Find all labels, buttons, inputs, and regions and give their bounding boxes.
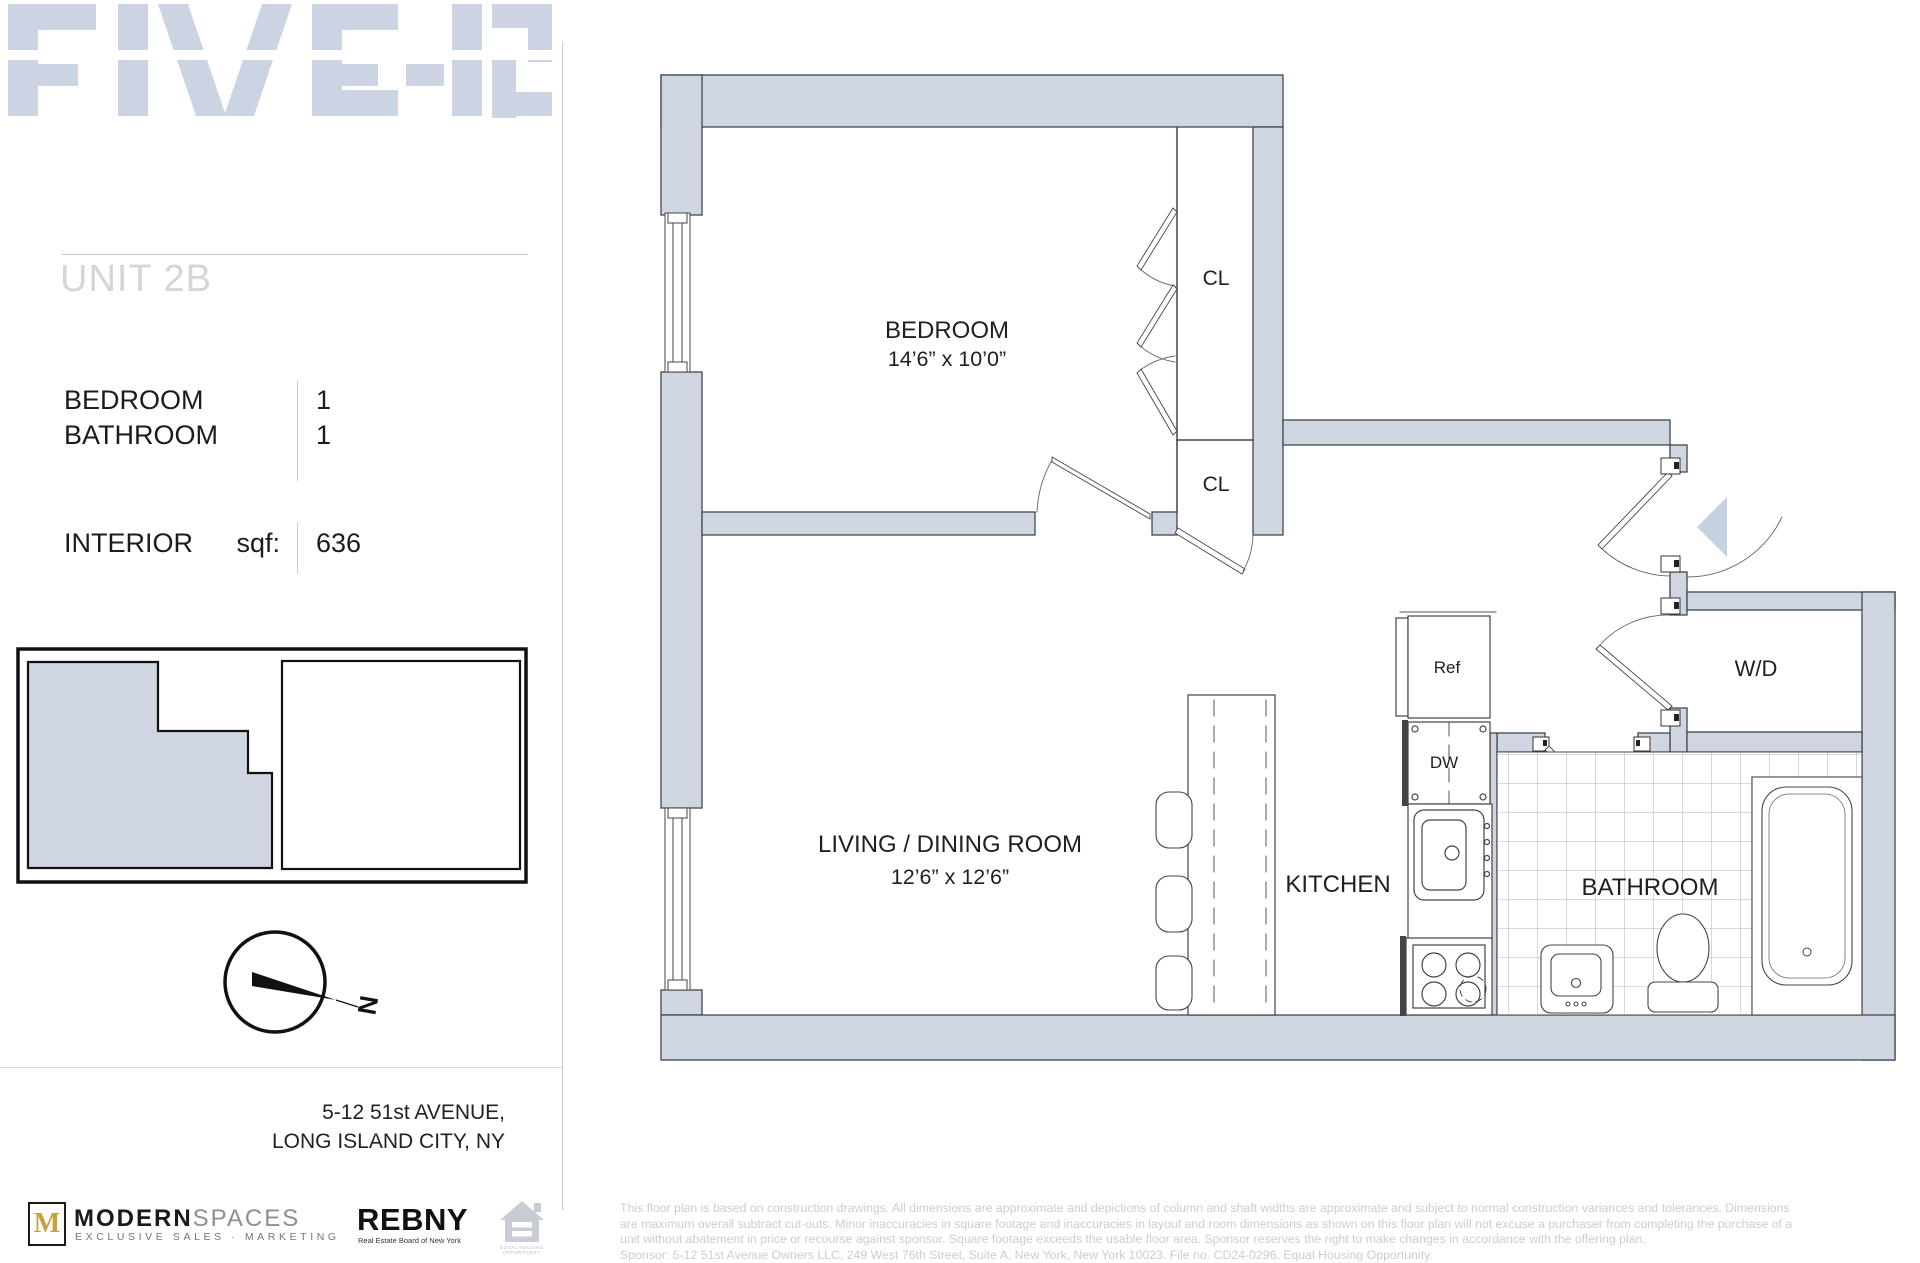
wall-right bbox=[1862, 592, 1895, 1060]
disclaimer-line: unit without abatement in price or recou… bbox=[620, 1232, 1820, 1248]
modernspaces-logo: MODERNSPACES bbox=[74, 1205, 300, 1233]
entry-door bbox=[1598, 472, 1782, 577]
closet-lower-label: CL bbox=[1203, 473, 1230, 496]
floor-plan: BEDROOM 14’6” x 10’0” CL CL LIVING / DIN… bbox=[352, 75, 1895, 1060]
sidebar-top-rule bbox=[62, 254, 528, 255]
bedroom-dims: 14’6” x 10’0” bbox=[888, 347, 1006, 371]
five12-logo bbox=[0, 4, 560, 118]
bedroom-door bbox=[1037, 457, 1150, 519]
rebny-logo: REBNY bbox=[357, 1202, 468, 1238]
wall-hall-north bbox=[1283, 420, 1670, 445]
sidebar-bottom-rule bbox=[0, 1067, 562, 1068]
wd-closet-door bbox=[1596, 615, 1672, 710]
sidebar-divider bbox=[562, 42, 563, 1210]
address: 5-12 51st AVENUE, LONG ISLAND CITY, NY bbox=[200, 1098, 505, 1156]
closet-doors-upper bbox=[1137, 208, 1177, 435]
interior-divider bbox=[297, 522, 298, 574]
stool bbox=[1156, 956, 1192, 1010]
vanity-sink bbox=[1541, 945, 1613, 1013]
stool bbox=[1156, 876, 1192, 932]
closet-upper-label: CL bbox=[1203, 267, 1230, 290]
wall-bedroom-east bbox=[1253, 127, 1283, 535]
interior-label: INTERIOR bbox=[64, 528, 193, 559]
closet-partitions bbox=[1177, 127, 1253, 512]
modernspaces-monogram: M bbox=[28, 1202, 66, 1246]
modernspaces-name-bold: MODERN bbox=[74, 1205, 193, 1232]
rebny-tagline: Real Estate Board of New York bbox=[358, 1236, 461, 1245]
disclaimer-line: Sponsor: 5-12 51st Avenue Owners LLC, 24… bbox=[620, 1248, 1820, 1263]
equal-housing-icon bbox=[500, 1201, 544, 1242]
wall-bedroom-south bbox=[702, 512, 1035, 535]
closet-door-lower bbox=[1175, 528, 1253, 574]
unit-title: UNIT 2B bbox=[60, 258, 212, 301]
compass bbox=[225, 932, 358, 1032]
stool bbox=[1156, 792, 1192, 848]
interior-value: 636 bbox=[316, 528, 361, 559]
stat-label-bathroom: BATHROOM bbox=[64, 420, 218, 451]
equal-housing-label: EQUAL HOUSING OPPORTUNITY bbox=[496, 1245, 548, 1255]
wall-left-middle bbox=[661, 372, 702, 808]
disclaimer-line: are maximum overall subtract cut-outs. M… bbox=[620, 1217, 1820, 1233]
wall-top bbox=[661, 75, 1283, 127]
stat-label-bedroom: BEDROOM bbox=[64, 385, 204, 416]
bedroom-label: BEDROOM bbox=[885, 317, 1009, 344]
building-key-plan bbox=[18, 649, 526, 882]
kitchen-island bbox=[1156, 695, 1275, 1015]
address-line-2: LONG ISLAND CITY, NY bbox=[200, 1127, 505, 1156]
living-window bbox=[665, 808, 690, 990]
dishwasher-label: DW bbox=[1430, 753, 1458, 772]
fridge-door bbox=[1396, 618, 1408, 716]
disclaimer: This floor plan is based on construction… bbox=[620, 1201, 1820, 1263]
kitchen-label: KITCHEN bbox=[1285, 871, 1390, 898]
washer-dryer-label: W/D bbox=[1735, 656, 1778, 681]
fridge-label: Ref bbox=[1434, 658, 1461, 677]
stat-value-bathroom: 1 bbox=[316, 420, 331, 451]
stat-value-bedroom: 1 bbox=[316, 385, 331, 416]
modernspaces-name-light: SPACES bbox=[193, 1205, 301, 1232]
wall-bottom bbox=[661, 1015, 1895, 1060]
sqf-label: sqf: bbox=[180, 528, 280, 559]
stats-divider bbox=[297, 381, 298, 481]
entry-arrow bbox=[1697, 497, 1727, 557]
bedroom-window bbox=[665, 213, 690, 372]
bathroom-label: BATHROOM bbox=[1582, 874, 1719, 901]
disclaimer-line: This floor plan is based on construction… bbox=[620, 1201, 1820, 1217]
compass-n-label: N bbox=[352, 993, 385, 1017]
key-plan-other-unit bbox=[282, 661, 520, 869]
wall-bedroom-door-jamb bbox=[1152, 512, 1177, 535]
plan-graphics: BEDROOM 14’6” x 10’0” CL CL LIVING / DIN… bbox=[0, 0, 1920, 1263]
bathtub bbox=[1762, 787, 1852, 985]
door-hardware bbox=[1533, 458, 1680, 751]
modernspaces-tagline: EXCLUSIVE SALES · MARKETING bbox=[75, 1231, 340, 1243]
living-dims: 12’6” x 12’6” bbox=[891, 865, 1009, 889]
wall-left-lower bbox=[661, 990, 702, 1015]
floorplan-sheet: BEDROOM 14’6” x 10’0” CL CL LIVING / DIN… bbox=[0, 0, 1920, 1263]
address-line-1: 5-12 51st AVENUE, bbox=[200, 1098, 505, 1127]
living-label: LIVING / DINING ROOM bbox=[818, 831, 1082, 858]
wall-wd-south bbox=[1687, 732, 1862, 752]
wall-left-upper bbox=[661, 75, 702, 215]
